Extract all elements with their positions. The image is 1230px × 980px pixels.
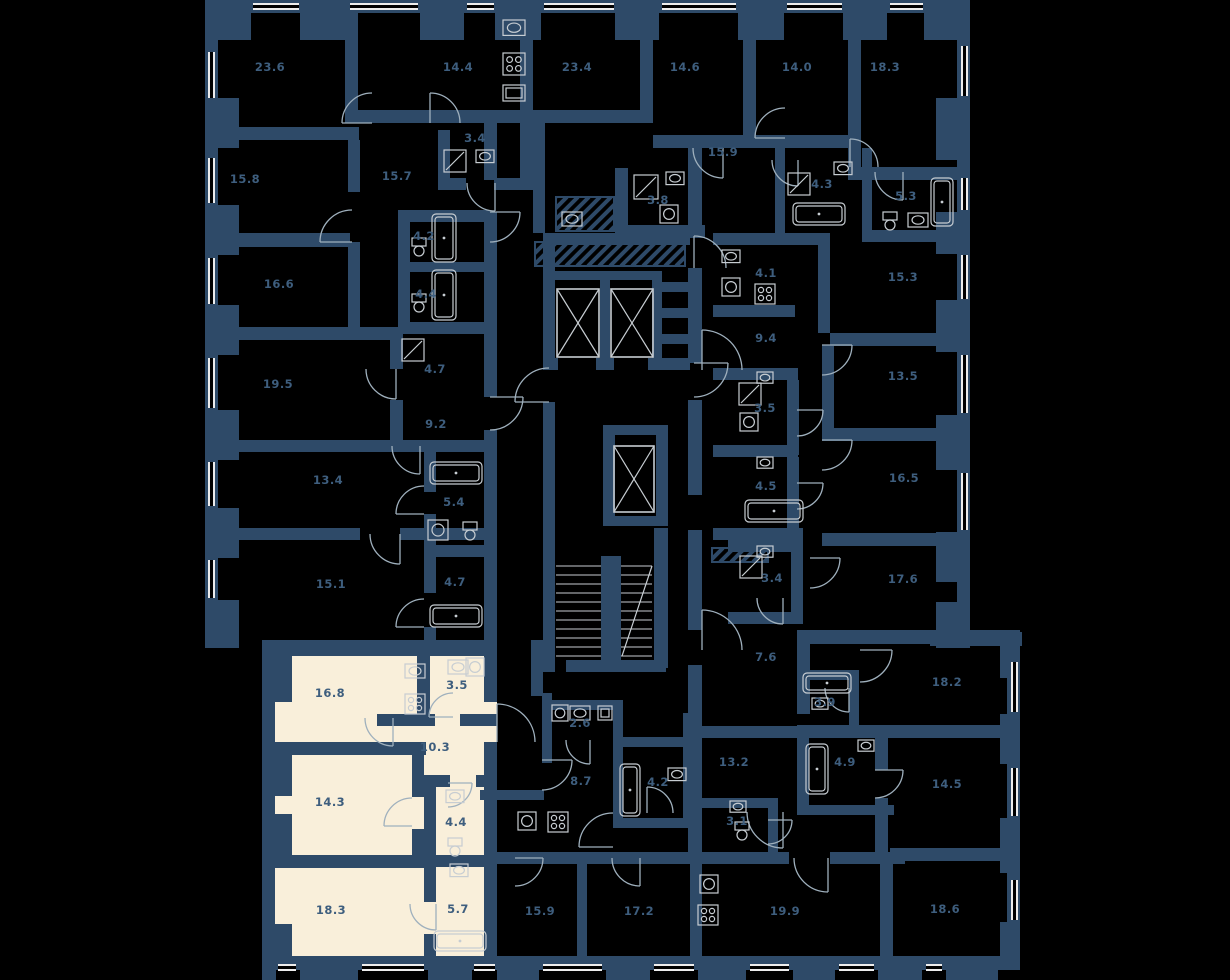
wall [662, 334, 688, 344]
wall [653, 135, 848, 148]
room-area-label-selected: 16.8 [315, 686, 345, 700]
wall [797, 630, 1020, 644]
room-area-label: 13.5 [888, 369, 918, 383]
window-gap [963, 255, 966, 299]
wall [398, 210, 490, 222]
room-area-label: 9.2 [425, 417, 447, 431]
wall [713, 305, 795, 317]
bathtub-drain [941, 201, 944, 204]
appliance-door [601, 709, 609, 717]
washer-body [722, 278, 740, 296]
room-area-label: 15.7 [382, 169, 412, 183]
wall [1000, 818, 1020, 873]
wall [484, 640, 497, 702]
stove-burner [766, 287, 771, 292]
room-area-label: 17.2 [624, 904, 654, 918]
room-area-label: 18.2 [932, 675, 962, 689]
toilet-bowl [414, 302, 424, 312]
room-area-label: 14.0 [782, 60, 812, 74]
room-area-label: 3.8 [647, 193, 669, 207]
wall [601, 556, 621, 662]
wall [412, 755, 424, 797]
window-gap [890, 5, 923, 8]
room-area-label: 16.5 [889, 471, 919, 485]
elevator-icon [557, 289, 599, 357]
wall [348, 242, 360, 333]
washing-machine-icon [722, 278, 740, 296]
wall [787, 380, 799, 455]
stove-burner [701, 916, 706, 921]
wall [377, 714, 435, 726]
door-arc-icon [467, 183, 495, 211]
wall [822, 533, 957, 546]
wall [596, 358, 614, 370]
window-gap [839, 966, 874, 969]
window-gap [963, 46, 966, 96]
sink-icon [757, 457, 773, 468]
wall [791, 552, 803, 622]
wall [438, 178, 466, 190]
bathtub-icon [430, 605, 482, 627]
room-area-label: 15.9 [708, 145, 738, 159]
stove-burner [709, 916, 714, 921]
room-area-label: 3.1 [726, 814, 748, 828]
wall [520, 13, 533, 185]
door-arc-icon [366, 369, 396, 399]
wall [822, 345, 834, 428]
room-area-label-selected: 18.3 [316, 903, 346, 917]
room-area-label: 4.1 [755, 266, 777, 280]
bathtub-drain [629, 789, 632, 792]
room-area-label-selected: 3.5 [446, 678, 468, 692]
wall [205, 600, 239, 648]
room-area-label: 4.3 [811, 177, 833, 191]
room-area-label: 2.6 [569, 716, 591, 730]
door-arc-icon [396, 486, 424, 514]
room-area-label-selected: 4.4 [445, 815, 467, 829]
shower-icon [788, 173, 810, 195]
window-gap [543, 966, 602, 969]
wall [640, 13, 653, 110]
room-area-label: 5.3 [895, 189, 917, 203]
room-area-label: 23.4 [562, 60, 592, 74]
washer-drum [664, 209, 675, 220]
wall [398, 222, 410, 334]
door-arc-icon [755, 108, 785, 138]
wall [219, 233, 350, 247]
shower-diagonal [404, 341, 422, 359]
wall [603, 516, 668, 526]
room-area-label: 23.6 [255, 60, 285, 74]
door-arc-icon [810, 558, 840, 588]
wall [1000, 714, 1020, 764]
bathtub-drain [459, 940, 462, 943]
wall [648, 358, 690, 370]
room-area-label: 3.4 [464, 131, 486, 145]
wall [700, 726, 802, 738]
wall [420, 0, 464, 40]
door-arc-icon [396, 599, 424, 627]
room-area-label: 19.9 [770, 904, 800, 918]
wall [830, 333, 957, 346]
wall [613, 747, 623, 822]
wall [300, 0, 346, 40]
bathtub-icon [430, 462, 482, 484]
sink-basin [861, 742, 871, 749]
bathtub-icon [620, 764, 640, 816]
wall [880, 861, 893, 956]
sink-icon [666, 172, 684, 185]
door-arc-icon [822, 440, 852, 470]
washer-body [660, 205, 678, 223]
room-area-label: 4.5 [755, 479, 777, 493]
room-area-label-selected: 14.3 [315, 795, 345, 809]
sink-icon [908, 213, 928, 227]
door-arc-icon [370, 534, 400, 564]
window-gap [210, 52, 213, 98]
wall [412, 829, 424, 857]
sink-icon [858, 740, 874, 751]
wall [662, 282, 688, 292]
room-area-label-selected: 5.7 [447, 902, 469, 916]
stove-burner [507, 66, 513, 72]
washer-drum [726, 282, 737, 293]
wall [600, 271, 610, 367]
window-gap [362, 966, 424, 969]
sink-basin [726, 253, 737, 261]
bathtub-drain [443, 237, 446, 240]
wall [219, 528, 360, 540]
room-area-label: 3.4 [761, 571, 783, 585]
window-gap [210, 462, 213, 506]
washer-body [740, 413, 758, 431]
wall [484, 212, 497, 255]
wall [924, 0, 970, 40]
wall [615, 168, 628, 235]
stove-burner [701, 908, 706, 913]
room-area-label: 18.3 [870, 60, 900, 74]
room-area-label: 13.4 [313, 473, 343, 487]
washer-body [700, 875, 718, 893]
wall [205, 205, 239, 255]
wall [262, 924, 292, 970]
room-area-label: 18.6 [930, 902, 960, 916]
floor-plan-canvas: 23.614.423.414.614.018.315.815.73.415.93… [0, 0, 1230, 980]
washer-body [518, 812, 536, 830]
door-arc-icon [647, 787, 673, 813]
wall [654, 528, 668, 668]
sink-basin [672, 771, 683, 779]
toilet-bowl [737, 830, 747, 840]
window-gap [1013, 768, 1016, 816]
door-arc-icon [702, 330, 742, 370]
wall [936, 415, 970, 470]
door-arc-icon [797, 410, 823, 436]
wall [205, 0, 251, 40]
wall [480, 790, 544, 800]
bathtub-drain [826, 682, 829, 685]
wall [424, 545, 497, 557]
wall [688, 530, 702, 630]
room-area-label-selected: 10.3 [420, 740, 450, 754]
wall [606, 956, 650, 980]
wall [300, 956, 358, 980]
window-gap [210, 560, 213, 598]
wall [219, 327, 390, 340]
wall [688, 137, 702, 233]
wall [460, 714, 497, 726]
door-arc-icon [497, 704, 535, 742]
stove-burner [551, 823, 556, 828]
wall [219, 127, 359, 140]
wall [417, 656, 430, 716]
room-area-label: 14.6 [670, 60, 700, 74]
wall [428, 956, 472, 980]
room-area-label: 3.5 [754, 401, 776, 415]
wall [390, 400, 403, 440]
shower-diagonal [790, 175, 808, 193]
stove-burner [758, 295, 763, 300]
stove-icon [755, 284, 775, 304]
wall [424, 787, 436, 855]
toilet-bowl [414, 246, 424, 256]
wall [698, 956, 746, 980]
appliance-door [506, 88, 522, 98]
wall [424, 775, 450, 787]
stove-burner [758, 287, 763, 292]
sink-counter [908, 213, 928, 227]
window-gap [467, 5, 494, 8]
wall [775, 148, 785, 240]
stove-burner [766, 295, 771, 300]
shower-icon [402, 339, 424, 361]
wall [577, 864, 587, 956]
wall [345, 13, 358, 110]
wall [890, 848, 1007, 861]
wall [688, 268, 702, 363]
door-arc-icon [875, 770, 903, 798]
wall [862, 230, 957, 242]
window-gap [210, 258, 213, 304]
bathtub-drain [455, 615, 458, 618]
room-area-label: 13.2 [719, 755, 749, 769]
stove-burner [559, 815, 564, 820]
window-gap [787, 5, 842, 8]
wall [484, 110, 497, 180]
room-area-label: 4.7 [424, 362, 446, 376]
wall [878, 956, 922, 980]
wall [476, 775, 497, 787]
wall [484, 255, 497, 397]
door-arc-icon [579, 813, 613, 847]
wall [262, 750, 292, 796]
stove-icon [548, 812, 568, 832]
window-gap [210, 158, 213, 203]
wall [262, 656, 292, 702]
window-gap [1013, 880, 1016, 920]
room-area-label: 4.2 [413, 229, 435, 243]
room-area-label: 4.4 [415, 287, 437, 301]
door-arc-icon [797, 483, 823, 509]
wall [656, 425, 668, 525]
room-area-label: 9.4 [755, 331, 777, 345]
wall [424, 867, 436, 902]
wall [713, 528, 803, 540]
wall [797, 805, 894, 815]
wall [274, 742, 426, 755]
washing-machine-icon [700, 875, 718, 893]
window-gap [278, 966, 296, 969]
bathtub-drain [773, 510, 776, 513]
window-gap [1013, 662, 1016, 712]
washing-machine-icon [518, 812, 536, 830]
washing-machine-icon [660, 205, 678, 223]
wall [274, 855, 426, 868]
washer-drum [704, 879, 715, 890]
toilet-bowl [885, 220, 895, 230]
wall [797, 738, 809, 808]
wall [424, 557, 436, 593]
wall [613, 737, 695, 747]
sink-basin [760, 459, 770, 466]
room-area-label: 15.9 [525, 904, 555, 918]
room-area-label: 14.5 [932, 777, 962, 791]
window-gap [350, 5, 418, 8]
wall [848, 13, 861, 137]
wall [946, 956, 998, 980]
room-area-label: 4.7 [444, 575, 466, 589]
elevator-icon [611, 289, 653, 357]
wall [543, 520, 555, 672]
toilet-icon [883, 212, 897, 230]
wall [613, 818, 693, 828]
wall [348, 140, 360, 192]
room-area-label: 7.6 [755, 650, 777, 664]
room-area-label: 15.8 [230, 172, 260, 186]
wall [688, 665, 702, 852]
room-area-label: 15.3 [888, 270, 918, 284]
wall [533, 123, 545, 233]
stove-burner [709, 908, 714, 913]
bathtub-drain [455, 472, 458, 475]
window-gap [253, 5, 299, 8]
wardrobe-icon [511, 242, 700, 266]
room-area-label: 4.2 [647, 775, 669, 789]
window-gap [926, 966, 942, 969]
wall [787, 457, 799, 537]
stove-body [548, 812, 568, 832]
wall [531, 640, 543, 696]
bathtub-drain [818, 213, 821, 216]
door-arc-icon [542, 760, 572, 790]
wall [497, 956, 539, 980]
window-gap [662, 5, 736, 8]
elevator-icon [614, 446, 654, 512]
stove-body [755, 284, 775, 304]
wall [713, 445, 798, 457]
wall [662, 308, 688, 318]
wall [424, 627, 436, 640]
window-gap [750, 966, 789, 969]
wall [743, 13, 756, 137]
wall [345, 110, 533, 123]
window-gap [963, 473, 966, 530]
wall [818, 233, 830, 333]
room-area-label: 4.9 [834, 755, 856, 769]
stove-burner [551, 815, 556, 820]
wall [219, 440, 490, 452]
window-gap [654, 966, 694, 969]
wall [822, 428, 957, 441]
sink-basin [912, 216, 924, 224]
washer-drum [744, 417, 755, 428]
washing-machine-icon [740, 413, 758, 431]
bathtub-icon [793, 203, 845, 225]
hatch-line [511, 242, 535, 266]
sink-basin [670, 175, 681, 183]
stove-burner [559, 823, 564, 828]
wall [484, 742, 497, 958]
wall [936, 98, 970, 160]
room-area-label: 14.4 [443, 60, 473, 74]
wall [262, 640, 497, 656]
wall [793, 956, 835, 980]
wall [398, 322, 490, 334]
bathtub-drain [443, 294, 446, 297]
bathtub-icon [803, 673, 851, 693]
wall [862, 148, 872, 240]
room-area-label: 5.4 [443, 495, 465, 509]
wall [494, 178, 533, 190]
window-gap [210, 358, 213, 408]
stove-burner [507, 57, 513, 63]
room-area-label: 3.9 [814, 695, 836, 709]
wall [797, 725, 1009, 738]
toilet-tank [883, 212, 897, 220]
door-arc-icon [860, 650, 892, 682]
wall [262, 814, 292, 860]
bathtub-drain [816, 768, 819, 771]
window-gap [474, 966, 495, 969]
wall [205, 410, 239, 460]
room-area-label: 19.5 [263, 377, 293, 391]
window-gap [963, 355, 966, 413]
room-area-label: 16.6 [264, 277, 294, 291]
door-arc-icon [794, 858, 828, 892]
room-area-label: 17.6 [888, 572, 918, 586]
wall [205, 98, 239, 148]
floor-plan: 23.614.423.414.614.018.315.815.73.415.93… [0, 0, 1230, 980]
window-gap [963, 178, 966, 210]
wall [424, 855, 497, 867]
wall [533, 110, 653, 123]
sink-basin [838, 165, 849, 173]
wall [875, 725, 888, 770]
sink-counter [666, 172, 684, 185]
wall [688, 400, 702, 495]
wall [543, 402, 555, 520]
room-area-label: 15.1 [316, 577, 346, 591]
bathtub-icon [806, 744, 828, 794]
window-gap [544, 5, 614, 8]
appliance-icon [503, 85, 525, 101]
washer-drum [522, 816, 533, 827]
wall [713, 233, 818, 245]
room-area-label: 8.7 [570, 774, 592, 788]
